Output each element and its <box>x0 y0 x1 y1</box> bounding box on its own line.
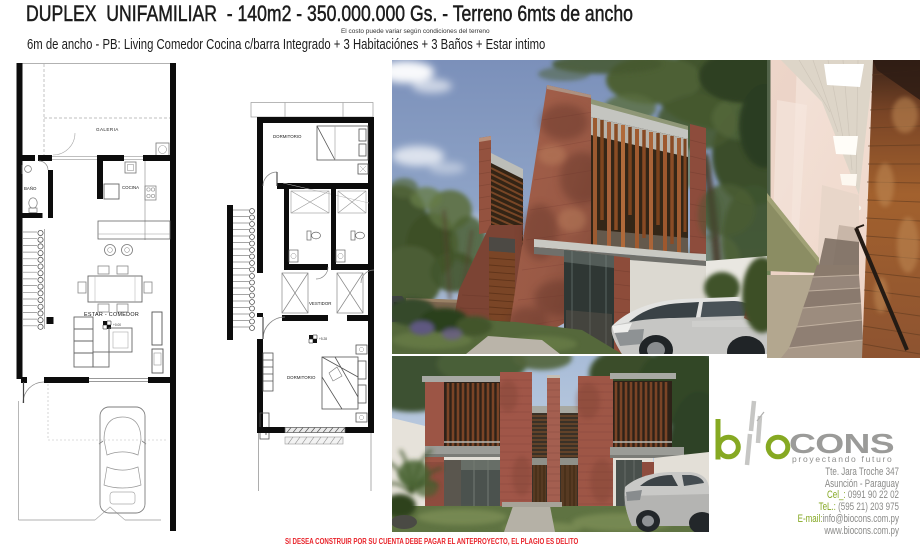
svg-text:COCINA: COCINA <box>122 185 139 190</box>
svg-text:GALERIA: GALERIA <box>96 127 119 132</box>
svg-text:VESTIDOR: VESTIDOR <box>309 301 331 306</box>
svg-text:+5.28: +5.28 <box>319 337 327 341</box>
svg-text:BAÑO: BAÑO <box>24 186 37 191</box>
svg-text:DORMITORIO: DORMITORIO <box>273 134 302 139</box>
svg-text:DORMITORIO: DORMITORIO <box>287 375 316 380</box>
svg-text:+0.00: +0.00 <box>113 323 121 327</box>
